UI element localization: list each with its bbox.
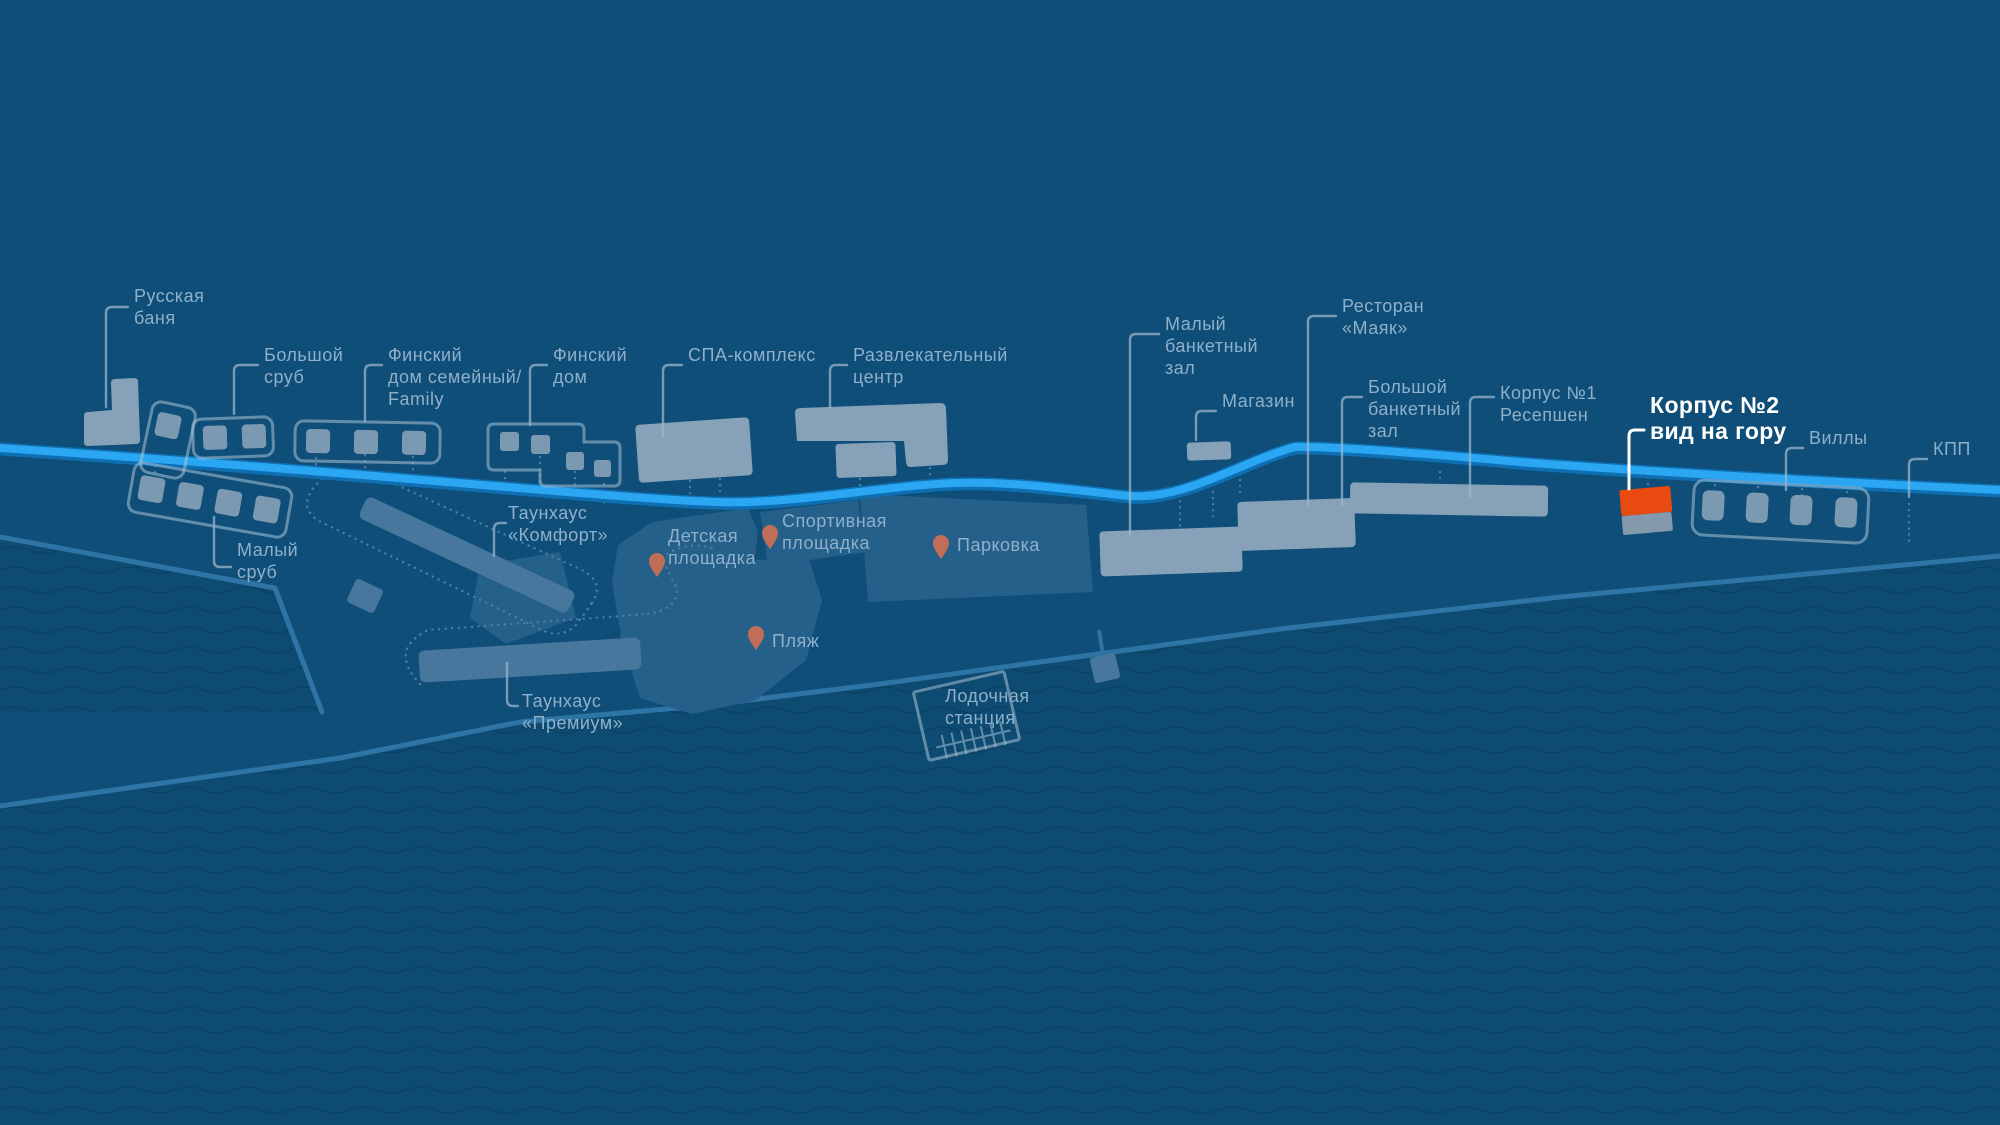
label-kpp: КПП (1933, 439, 1971, 459)
bolshoy-banketny-block (1237, 498, 1356, 551)
maly-banketny-block (1099, 527, 1242, 577)
building-magazin[interactable] (1187, 441, 1232, 461)
resort-map-page: Русская баня Большой сруб Финский дом се… (0, 0, 2000, 1125)
villa-unit (1789, 495, 1813, 526)
label-spa-complex: СПА-комплекс (688, 345, 816, 365)
cottage-unit (137, 475, 166, 504)
cottage-unit (214, 488, 243, 517)
korpus2-orange-part (1619, 486, 1672, 516)
cottage-unit (566, 452, 584, 470)
cottage-unit (531, 435, 550, 454)
label-korpus2-highlighted[interactable]: Корпус №2 вид на гору (1650, 392, 1787, 444)
cottage-unit (402, 431, 426, 455)
label-villy: Виллы (1809, 428, 1868, 448)
cottage-unit (203, 425, 228, 450)
building-spa-complex[interactable] (635, 417, 753, 483)
villa-unit (1834, 497, 1858, 528)
entertainment-inner (835, 442, 896, 478)
villa-unit (1701, 490, 1725, 521)
cottage-unit (354, 430, 378, 454)
cottage-unit (594, 460, 611, 477)
cottage-unit (252, 495, 281, 524)
villa-unit (1745, 492, 1769, 523)
label-magazin: Магазин (1222, 391, 1295, 411)
korpus1-block (1350, 482, 1549, 516)
cottage-unit (175, 481, 204, 510)
label-parkovka: Парковка (957, 535, 1040, 555)
cottage-unit (154, 411, 182, 439)
building-korpus2-highlighted[interactable] (1619, 486, 1674, 535)
label-plyazh: Пляж (772, 631, 819, 651)
cottage-unit (306, 429, 330, 453)
resort-map: Русская баня Большой сруб Финский дом се… (0, 0, 2000, 1125)
cottage-unit (242, 424, 267, 449)
cottage-unit (500, 432, 519, 451)
